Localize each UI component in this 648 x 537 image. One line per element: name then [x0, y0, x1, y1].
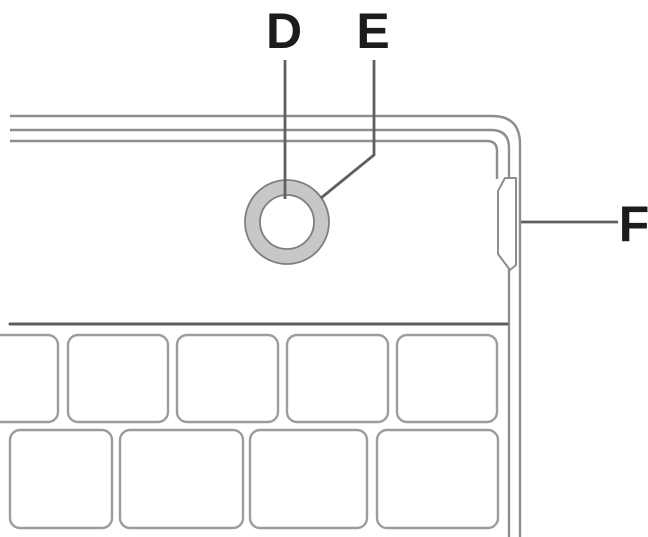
key [68, 335, 168, 422]
key [10, 430, 112, 528]
key [397, 335, 497, 422]
key [177, 335, 278, 422]
callout-d-label: D [266, 3, 302, 59]
power-button-center [260, 195, 314, 249]
key [287, 335, 388, 422]
key [377, 430, 498, 528]
keyboard-row-1 [0, 335, 497, 422]
keyboard-row-2 [10, 430, 498, 528]
key [250, 430, 367, 528]
diagram-canvas: D E F [0, 0, 648, 537]
callout-f-label: F [619, 196, 648, 252]
callout-e-label: E [356, 3, 389, 59]
side-button [498, 178, 516, 270]
key [0, 335, 58, 422]
device-corner-diagram: D E F [0, 0, 648, 537]
key [120, 430, 243, 528]
